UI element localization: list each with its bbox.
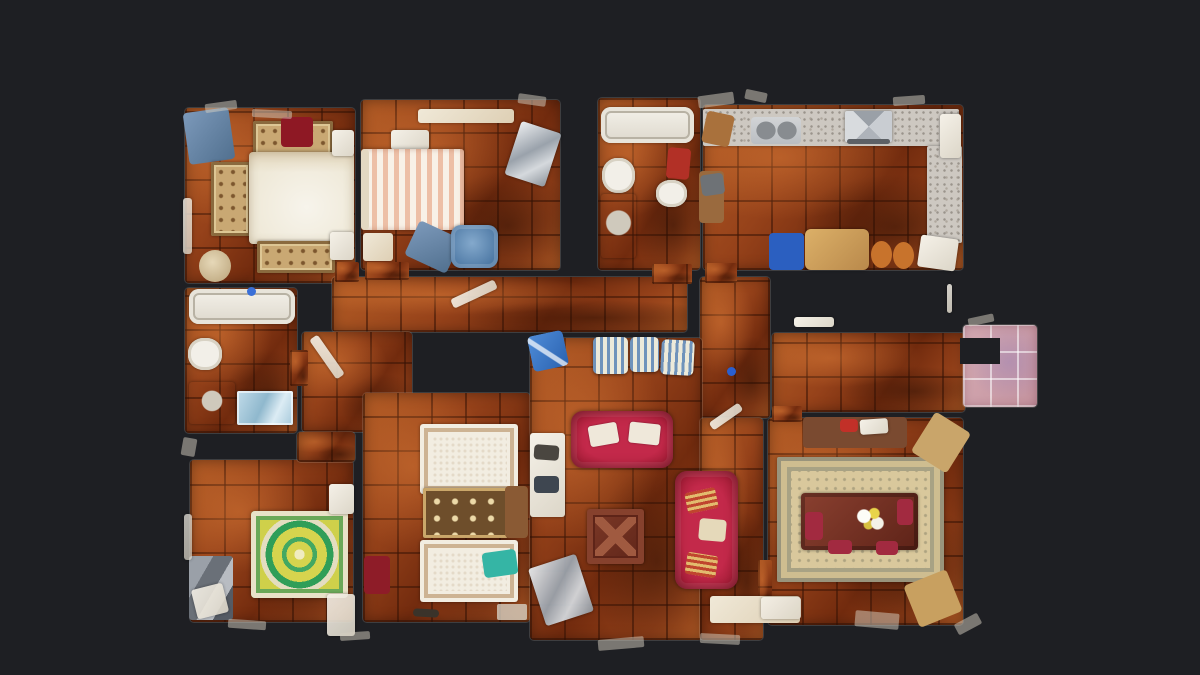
- shelf-item: [534, 476, 559, 493]
- counter-terrazzo-right: [927, 146, 962, 243]
- radiator: [183, 198, 192, 254]
- floorplan-canvas: [0, 0, 1200, 675]
- gray-chair: [700, 173, 726, 197]
- wall-notch-entry: [960, 338, 1000, 364]
- pouf: [199, 250, 231, 282]
- bathtub: [601, 107, 694, 143]
- radiator: [184, 514, 192, 560]
- wall-shelf: [794, 317, 834, 327]
- desk-red-item: [840, 419, 858, 432]
- twin-bed-top: [420, 424, 518, 494]
- scan-edge-debris: [181, 437, 198, 457]
- red-cushion: [281, 117, 313, 147]
- counter-terrazzo: [703, 109, 959, 146]
- blue-chair: [769, 233, 804, 270]
- room-bedroom-4-notch[interactable]: [297, 432, 355, 462]
- scan-edge-debris: [228, 619, 267, 631]
- door-kitchen[interactable]: [705, 263, 737, 283]
- scan-edge-debris: [700, 633, 740, 645]
- red-dining-chair: [876, 541, 898, 555]
- bidet: [656, 180, 687, 207]
- sink-vanity: [601, 194, 636, 258]
- sink-vanity: [189, 382, 235, 424]
- blue-armchair: [451, 225, 498, 268]
- nightstand: [332, 130, 354, 156]
- persian-rug-bottom: [257, 241, 335, 273]
- radiator: [761, 597, 801, 619]
- green-floral-rug: [251, 511, 348, 598]
- scan-edge-debris: [744, 89, 768, 103]
- headboard: [361, 149, 369, 230]
- toilet: [602, 158, 635, 193]
- nightstand: [330, 232, 354, 260]
- cream-cushion: [698, 518, 727, 542]
- dark-object: [413, 608, 439, 617]
- stove-strip: [847, 139, 890, 144]
- red-dining-chair: [897, 499, 913, 525]
- striped-folding-chair: [660, 339, 695, 376]
- door-dining[interactable]: [772, 406, 802, 422]
- bathtub: [189, 289, 295, 324]
- coffee-table: [587, 509, 644, 564]
- door-bathroom-2[interactable]: [290, 350, 308, 386]
- shampoo-bottle: [247, 287, 256, 296]
- pillow: [391, 130, 429, 150]
- double-sink: [751, 117, 801, 144]
- sofa-cushion: [628, 421, 661, 445]
- striped-cushion: [684, 552, 718, 579]
- toilet: [188, 338, 222, 370]
- scan-edge-debris: [340, 631, 370, 641]
- diamond-rug: [423, 488, 508, 538]
- persian-rug-left: [211, 162, 251, 236]
- red-chair: [364, 556, 390, 594]
- wardrobe-top: [418, 109, 514, 123]
- white-bits: [497, 604, 527, 620]
- teal-pillow: [481, 549, 518, 578]
- fridge: [940, 114, 961, 158]
- room-hall-right[interactable]: [772, 333, 965, 412]
- extractor-hood: [845, 111, 892, 142]
- flower-centerpiece: [855, 505, 887, 533]
- door-bathroom-1[interactable]: [652, 264, 692, 284]
- door-frame: [947, 284, 952, 313]
- white-door-leaf: [917, 235, 959, 272]
- nightstand: [329, 484, 354, 514]
- wood-nightstand: [505, 486, 528, 538]
- desk-papers: [860, 418, 889, 435]
- striped-folding-chair: [593, 337, 628, 374]
- red-towel: [666, 147, 692, 180]
- room-hall-mid[interactable]: [700, 277, 770, 418]
- red-dining-chair: [805, 512, 823, 540]
- scan-edge-debris: [854, 610, 899, 630]
- striped-bed: [361, 149, 464, 230]
- blue-bag: [527, 330, 570, 373]
- room-hall-main[interactable]: [332, 277, 687, 332]
- double-bed: [249, 152, 354, 244]
- door-bedroom-2[interactable]: [365, 262, 409, 280]
- white-items: [327, 594, 355, 636]
- blue-blanket: [183, 107, 236, 165]
- shower-glass: [237, 391, 293, 425]
- nightstand: [363, 233, 393, 261]
- door-bedroom-1[interactable]: [335, 262, 359, 282]
- wicker-stool: [893, 242, 914, 269]
- shelf-item: [534, 444, 560, 461]
- kitchen-table: [805, 229, 869, 270]
- red-dining-chair: [828, 540, 852, 554]
- wicker-stool: [871, 241, 892, 268]
- striped-folding-chair: [630, 337, 659, 372]
- floor-marker: [727, 367, 736, 376]
